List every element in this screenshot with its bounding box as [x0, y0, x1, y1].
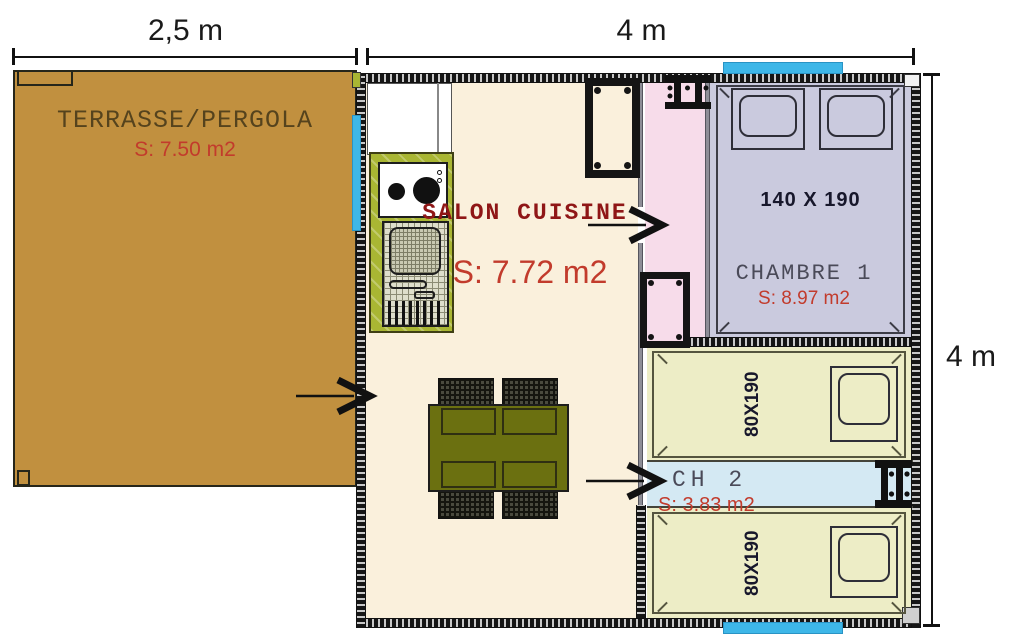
fridge-badge — [414, 291, 435, 299]
dimension-tick — [366, 48, 369, 65]
burner-small — [388, 183, 405, 200]
wardrobe-corner-dot — [594, 87, 601, 94]
floor-plan: 2,5 m 4 m 4 m TERRASSE/PERGOLA S: 7.50 m… — [0, 0, 1024, 636]
dimension-line-top-right — [368, 56, 915, 58]
chair-back-outline — [441, 461, 496, 488]
bed-size-label: 140 X 190 — [716, 189, 905, 212]
storage-corner-dot — [648, 280, 654, 286]
entry-door-arrow — [296, 376, 378, 416]
chair — [502, 378, 558, 407]
bed-size-label: 80X190 — [740, 353, 766, 456]
dimension-line-top-left — [13, 56, 358, 58]
dining-table — [428, 404, 569, 492]
wardrobe-corner-dot — [594, 162, 601, 169]
salon-area-label: S: 7.72 m2 — [430, 254, 630, 291]
window-top — [723, 62, 843, 74]
dimension-line-right — [931, 74, 933, 626]
bed-size-label: 80X190 — [740, 514, 766, 612]
storage-box — [640, 272, 690, 348]
storage-corner-dot — [648, 334, 654, 340]
kitchen-counter — [367, 83, 452, 155]
ch2-label: CH 2 — [672, 467, 747, 493]
pillow — [819, 88, 893, 150]
fridge-grill — [388, 301, 443, 325]
window-bottom — [723, 622, 843, 634]
corner-post — [352, 72, 361, 88]
dimension-tick — [923, 73, 940, 76]
fridge-handle — [389, 280, 427, 289]
dimension-tick — [912, 48, 915, 65]
storage-corner-dot — [676, 280, 682, 286]
wall-right — [911, 73, 921, 628]
wardrobe — [585, 78, 640, 178]
stove-knob — [437, 170, 442, 175]
stove-knob — [437, 178, 442, 183]
chair-back-outline — [502, 461, 557, 488]
terrace-corner-post — [17, 470, 30, 486]
chair — [502, 490, 558, 519]
wardrobe-corner-dot — [624, 162, 631, 169]
chair — [438, 378, 494, 407]
hall-door-arrow — [588, 205, 670, 245]
terrace-corner-post — [17, 70, 73, 86]
partition-corridor-top — [647, 460, 913, 462]
dimension-tick — [12, 48, 15, 65]
chambre1-label: CHAMBRE 1 — [714, 261, 894, 286]
bunk-ladder-icon — [875, 460, 912, 508]
dimension-label-building-width: 4 m — [368, 14, 915, 48]
pillow — [731, 88, 805, 150]
chair-back-outline — [441, 408, 496, 435]
kitchen-counter-divider — [437, 83, 439, 155]
dimension-tick — [355, 48, 358, 65]
pillow — [830, 366, 898, 442]
pillow — [830, 526, 898, 598]
storage-corner-dot — [676, 334, 682, 340]
wall-salon-bedroom — [636, 505, 646, 618]
chair-back-outline — [502, 408, 557, 435]
chair — [438, 490, 494, 519]
bunk-ladder-icon — [665, 75, 711, 109]
ch2-door-arrow — [586, 461, 668, 501]
dimension-label-building-height: 4 m — [946, 340, 1016, 374]
wardrobe-corner-dot — [624, 87, 631, 94]
wall-vent — [904, 74, 920, 87]
terrace-label: TERRASSE/PERGOLA — [13, 106, 357, 135]
dimension-label-terrace-width: 2,5 m — [13, 14, 358, 48]
terrace-area-label: S: 7.50 m2 — [13, 138, 357, 162]
dimension-tick — [923, 624, 940, 627]
partition-hall-chambre1 — [705, 83, 710, 337]
chambre1-area-label: S: 8.97 m2 — [714, 288, 894, 310]
